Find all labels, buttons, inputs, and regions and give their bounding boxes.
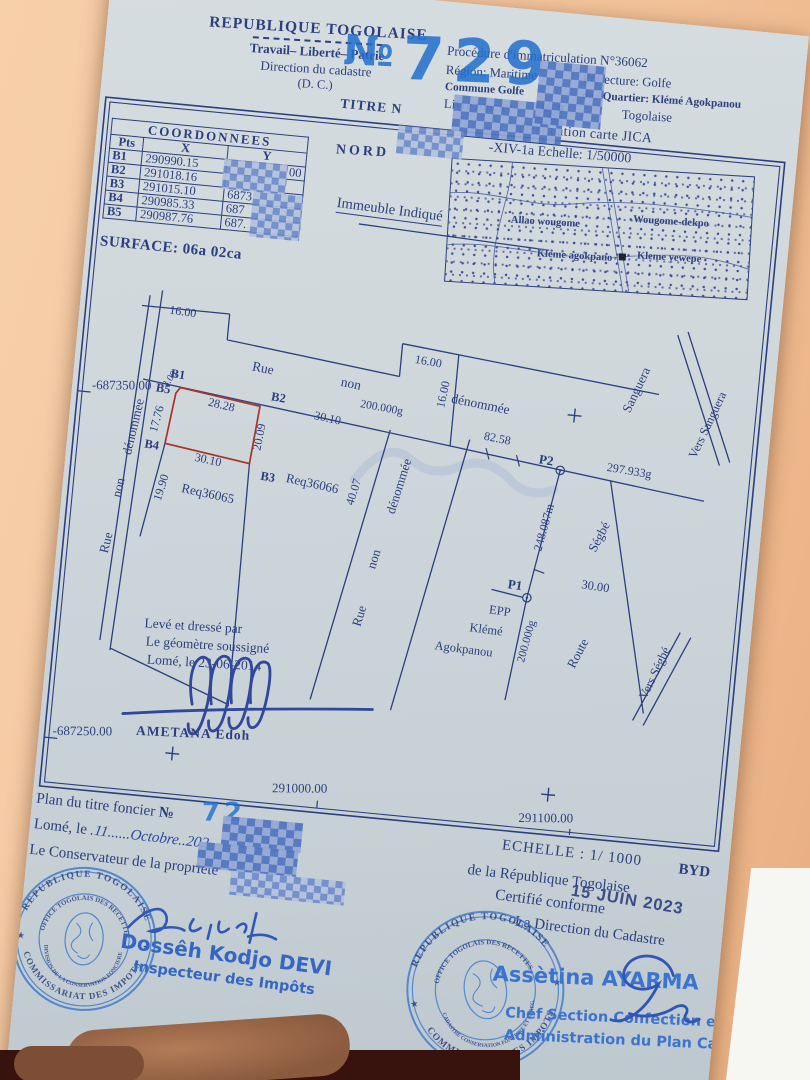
redaction-block-titre-number [534,61,606,130]
holding-finger [14,1046,144,1080]
pt-b5: B5 [103,204,138,221]
dir-vers-sanguera: Vers Sanguera [686,389,730,460]
measure-200g-top: 200.000g [359,398,404,418]
street-mid-rue: Rue [349,603,370,628]
point-b3: B3 [259,469,276,485]
background-white-area [726,868,810,1080]
photo-background: 16.00 16.00 16.00 28.28 3.00 17.76 20.09… [0,0,810,1080]
measure-1776: 17.76 [146,404,167,434]
grid-south2: 291100.00 [518,810,573,825]
epp-line3: Agokpanou [434,638,494,660]
point-p2: P2 [538,451,555,468]
grid-west1: -687350.00 [92,377,152,393]
measure-1990: 19.90 [150,472,171,502]
point-b1: B1 [170,366,187,382]
titre-number-digits: 729 [401,24,556,101]
measure-200g-bottom: 200.000g [515,619,538,664]
point-b4: B4 [143,437,160,453]
measure-3010-bottom: 30.10 [193,450,222,470]
area-route: Route [564,636,592,671]
street-mid-denommee: dénommée [383,456,415,515]
grid-south1: 291000.00 [272,780,327,795]
epp-line2: Klémé [469,620,504,638]
cadastral-plan-sheet: 16.00 16.00 16.00 28.28 3.00 17.76 20.09… [1,0,809,1080]
titre-number-stamp: №729 [342,21,557,100]
measure-16-1: 16.00 [169,303,198,321]
measure-4007: 40.07 [343,477,364,507]
surveyor-line3: Lomé, le 23-06-2014 [147,652,262,674]
measure-16-2: 16.00 [414,352,443,371]
parcel-req36066: Req36066 [285,470,341,496]
point-p1-dot [526,596,529,599]
measure-8258: 82.58 [483,429,512,448]
jica-map-inset: Allao wougome Wougome-dekpo Kleme agokpa… [444,158,755,300]
measure-3000: 30.00 [581,577,611,595]
point-b5: B5 [155,380,172,396]
area-segbe: Ségbé [585,519,613,554]
measure-297g: 297.933g [606,460,653,481]
grid-west2: -687250.00 [53,723,113,739]
street-top-non: non [340,374,363,393]
star-icon: ★ [17,930,26,940]
numero-symbol: № [342,25,404,77]
dir-vers-segbe: Vers Ségbé [636,644,673,701]
street-mid-non: non [363,547,383,571]
measure-248m: 248.087m [531,502,558,553]
street-top-denommee: dénommée [450,391,511,418]
measure-2009: 20.09 [250,422,269,451]
surveyor-line1: Levé et dressé par [144,615,243,636]
point-p1: P1 [507,576,524,593]
area-sanguera: Sanguera [619,364,653,414]
point-b2: B2 [270,389,287,405]
measure-ticks [40,391,607,835]
redaction-block-table-y1 [222,159,289,195]
street-left-non: non [109,476,128,499]
surveyor-name: AMETANA Edoh [136,723,251,743]
epp-line1: EPP [488,603,511,620]
star-icon: ★ [410,999,419,1009]
immeuble-marker-square [619,253,626,260]
parcel-req36065: Req36065 [180,480,235,506]
redaction-block-table-y2 [249,192,303,242]
measure-3010-right: 30.10 [313,408,342,428]
street-top-rue: Rue [251,358,275,377]
